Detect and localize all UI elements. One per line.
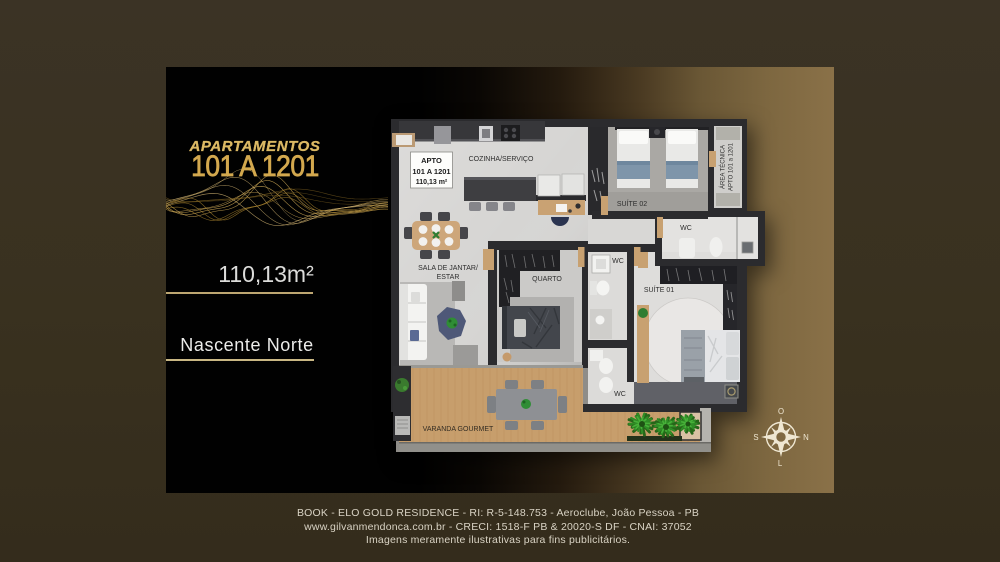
svg-text:APTO 101 a 1201: APTO 101 a 1201 (729, 142, 735, 191)
svg-text:WC: WC (612, 258, 624, 265)
svg-text:L: L (778, 459, 783, 468)
svg-text:S: S (753, 433, 758, 442)
svg-text:SUÍTE 01: SUÍTE 01 (644, 285, 674, 294)
svg-text:O: O (778, 407, 784, 416)
svg-text:N: N (803, 433, 809, 442)
svg-text:110,13 m²: 110,13 m² (416, 179, 448, 186)
svg-text:APTO: APTO (421, 156, 442, 165)
svg-text:SALA DE JANTAR/: SALA DE JANTAR/ (418, 265, 478, 272)
svg-text:ÁREA TÉCNICA: ÁREA TÉCNICA (720, 145, 727, 189)
svg-text:COZINHA/SERVIÇO: COZINHA/SERVIÇO (469, 156, 534, 163)
svg-text:QUARTO: QUARTO (532, 276, 562, 283)
svg-text:WC: WC (614, 391, 626, 398)
svg-text:101 A 1201: 101 A 1201 (412, 167, 450, 176)
svg-text:ESTAR: ESTAR (437, 274, 460, 281)
svg-text:WC: WC (680, 225, 692, 232)
svg-text:VARANDA GOURMET: VARANDA GOURMET (423, 426, 494, 433)
svg-text:SUÍTE 02: SUÍTE 02 (617, 199, 647, 208)
